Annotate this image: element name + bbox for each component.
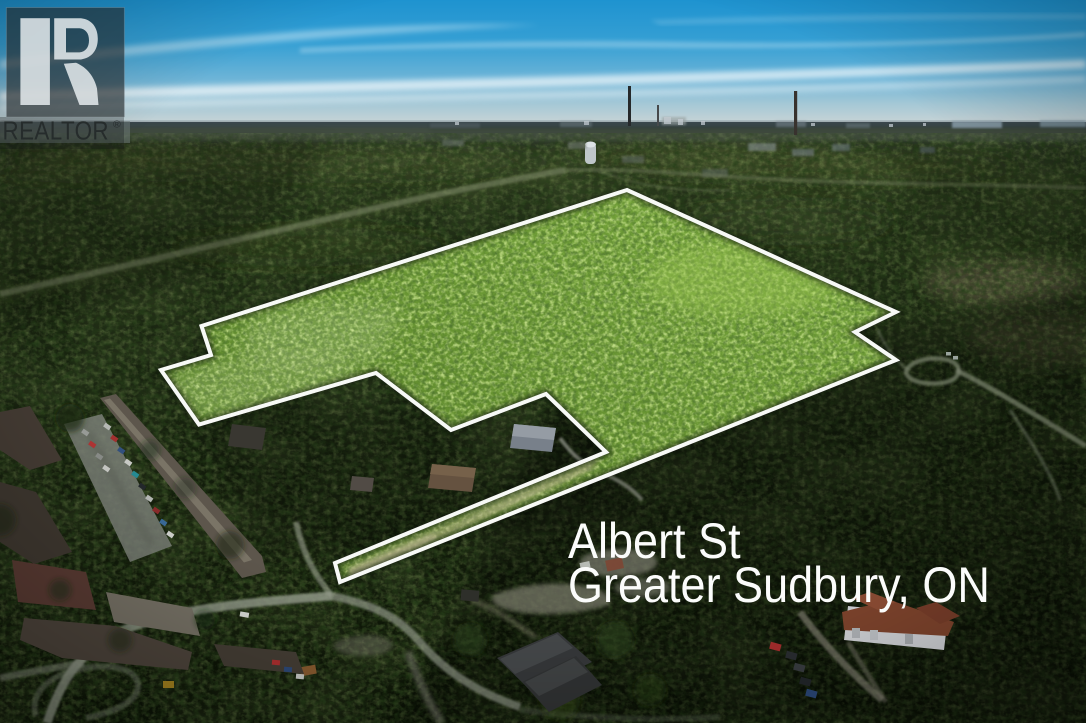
svg-text:REALTOR: REALTOR: [3, 117, 110, 146]
svg-text:®: ®: [113, 119, 121, 131]
